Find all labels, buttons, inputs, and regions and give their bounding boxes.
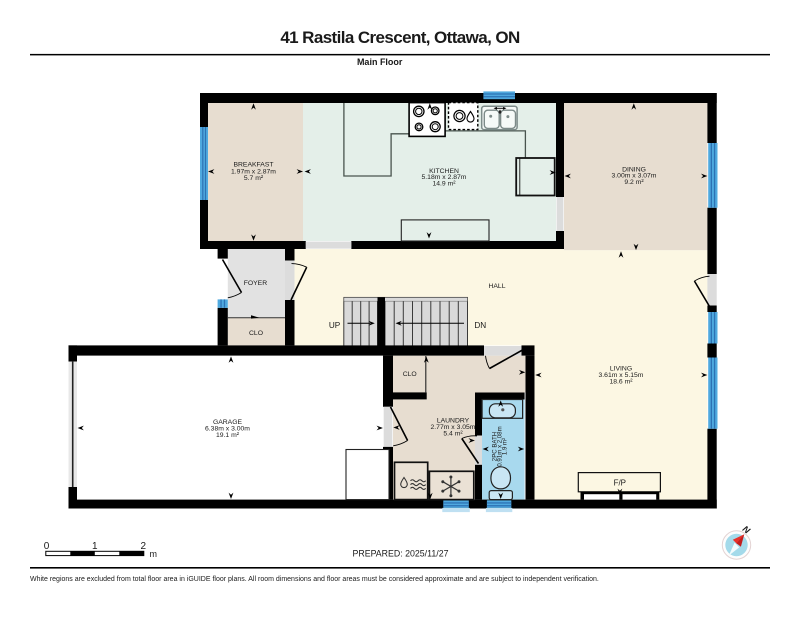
svg-text:m: m	[150, 549, 158, 559]
svg-text:HALL: HALL	[488, 283, 505, 290]
svg-text:CLO: CLO	[249, 330, 263, 337]
svg-text:19.1 m²: 19.1 m²	[216, 432, 240, 439]
svg-text:FOYER: FOYER	[244, 280, 268, 287]
svg-text:CLO: CLO	[403, 371, 417, 378]
svg-text:5.7 m²: 5.7 m²	[244, 175, 264, 182]
svg-text:1.9 m²: 1.9 m²	[502, 438, 509, 455]
svg-text:UP: UP	[329, 321, 341, 330]
svg-text:PREPARED: 2025/11/27: PREPARED: 2025/11/27	[352, 549, 448, 559]
svg-text:DN: DN	[474, 321, 486, 330]
svg-text:5.4 m²: 5.4 m²	[443, 430, 463, 437]
svg-text:14.9 m²: 14.9 m²	[432, 180, 456, 187]
svg-text:9.2 m²: 9.2 m²	[624, 179, 644, 186]
svg-text:0: 0	[44, 541, 50, 552]
svg-text:18.6 m²: 18.6 m²	[609, 379, 633, 386]
svg-text:White regions are excluded fro: White regions are excluded from total fl…	[30, 576, 599, 583]
svg-text:2: 2	[141, 541, 147, 552]
svg-text:F/P: F/P	[614, 479, 626, 488]
svg-text:Main Floor: Main Floor	[357, 57, 403, 67]
svg-text:41 Rastila Crescent, Ottawa, O: 41 Rastila Crescent, Ottawa, ON	[280, 28, 520, 47]
svg-text:1: 1	[92, 541, 98, 552]
